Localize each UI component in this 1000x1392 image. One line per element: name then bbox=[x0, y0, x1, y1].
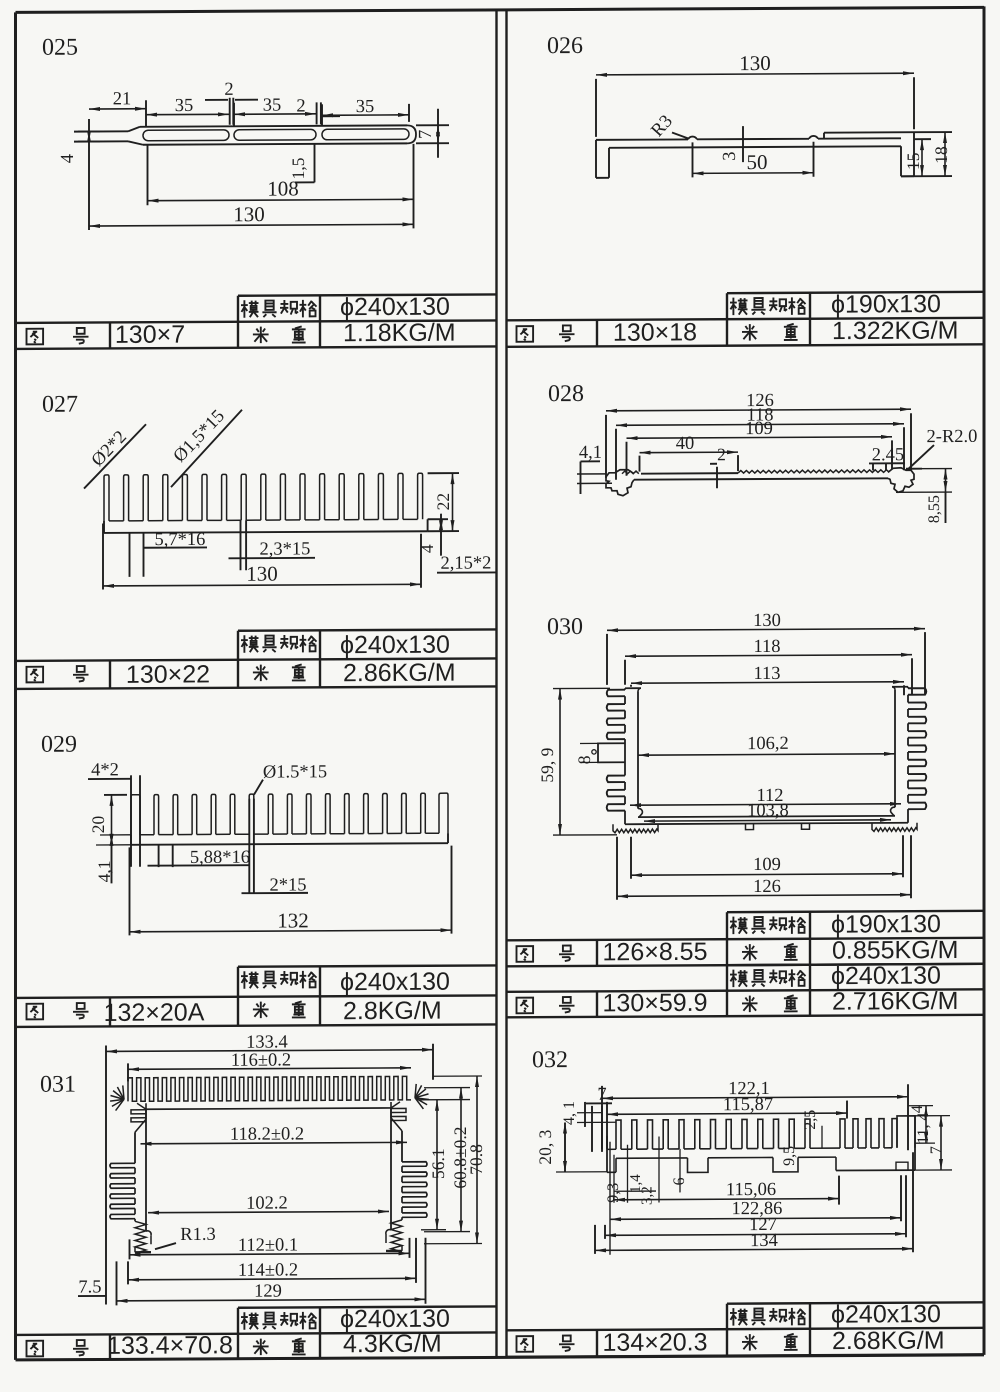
svg-text:130: 130 bbox=[233, 202, 264, 226]
svg-text:118: 118 bbox=[753, 637, 780, 657]
svg-text:106,2: 106,2 bbox=[747, 734, 789, 754]
svg-text:22: 22 bbox=[433, 493, 453, 511]
svg-text:2*15: 2*15 bbox=[270, 875, 307, 895]
svg-text:025: 025 bbox=[42, 35, 78, 61]
svg-text:R1.3: R1.3 bbox=[180, 1225, 215, 1245]
svg-text:132×20A: 132×20A bbox=[104, 998, 205, 1027]
svg-text:130: 130 bbox=[753, 611, 781, 631]
svg-text:40: 40 bbox=[676, 434, 694, 454]
svg-text:029: 029 bbox=[41, 732, 77, 758]
svg-text:ϕ240x130: ϕ240x130 bbox=[340, 631, 450, 660]
svg-text:4*2: 4*2 bbox=[91, 760, 119, 780]
svg-text:ϕ190x130: ϕ190x130 bbox=[831, 910, 941, 939]
svg-text:5,88*16: 5,88*16 bbox=[190, 848, 250, 868]
svg-text:56.1: 56.1 bbox=[428, 1148, 448, 1179]
svg-text:130×18: 130×18 bbox=[613, 318, 697, 346]
svg-text:Ø1.5*15: Ø1.5*15 bbox=[263, 762, 327, 782]
svg-text:130×7: 130×7 bbox=[115, 321, 185, 349]
svg-text:ϕ240x130: ϕ240x130 bbox=[831, 962, 941, 991]
svg-text:ϕ240x130: ϕ240x130 bbox=[340, 293, 450, 322]
svg-text:030: 030 bbox=[547, 614, 583, 640]
svg-text:126×8.55: 126×8.55 bbox=[603, 938, 708, 967]
svg-text:103,8: 103,8 bbox=[747, 801, 789, 821]
svg-text:ϕ240x130: ϕ240x130 bbox=[831, 1300, 941, 1329]
svg-text:032: 032 bbox=[532, 1047, 568, 1073]
svg-text:115,87: 115,87 bbox=[723, 1095, 773, 1115]
svg-text:1.322KG/M: 1.322KG/M bbox=[832, 316, 958, 345]
svg-text:027: 027 bbox=[42, 392, 78, 418]
svg-text:21: 21 bbox=[113, 89, 131, 109]
svg-text:2,3*15: 2,3*15 bbox=[260, 539, 311, 559]
svg-text:8,55: 8,55 bbox=[926, 495, 943, 523]
svg-text:50: 50 bbox=[747, 150, 768, 174]
svg-text:4: 4 bbox=[417, 544, 437, 553]
svg-text:2.86KG/M: 2.86KG/M bbox=[343, 659, 456, 688]
svg-text:114±0.2: 114±0.2 bbox=[238, 1260, 298, 1280]
svg-text:134: 134 bbox=[750, 1231, 778, 1251]
svg-text:116±0.2: 116±0.2 bbox=[231, 1050, 291, 1070]
svg-text:115,06: 115,06 bbox=[726, 1180, 776, 1200]
svg-text:35: 35 bbox=[175, 96, 193, 116]
svg-text:108: 108 bbox=[267, 176, 298, 200]
svg-text:11, 4: 11, 4 bbox=[915, 1112, 932, 1143]
svg-text:130: 130 bbox=[246, 562, 277, 586]
svg-text:20: 20 bbox=[88, 815, 108, 833]
svg-text:132: 132 bbox=[277, 908, 308, 932]
svg-text:4: 4 bbox=[909, 1105, 926, 1113]
svg-text:031: 031 bbox=[40, 1072, 76, 1098]
svg-text:8: 8 bbox=[574, 755, 594, 764]
svg-text:4: 4 bbox=[58, 154, 78, 163]
svg-text:112±0.1: 112±0.1 bbox=[238, 1235, 298, 1255]
svg-text:Ø2*2: Ø2*2 bbox=[88, 427, 131, 471]
svg-text:026: 026 bbox=[547, 33, 583, 59]
svg-text:9,5: 9,5 bbox=[781, 1146, 798, 1166]
svg-text:118.2±0.2: 118.2±0.2 bbox=[230, 1124, 304, 1144]
svg-text:1.18KG/M: 1.18KG/M bbox=[343, 319, 456, 348]
svg-text:2: 2 bbox=[296, 96, 305, 116]
svg-text:134×20.3: 134×20.3 bbox=[603, 1328, 708, 1357]
svg-text:102.2: 102.2 bbox=[246, 1193, 288, 1213]
svg-text:4, 1: 4, 1 bbox=[561, 1101, 578, 1125]
svg-text:130: 130 bbox=[739, 51, 770, 75]
svg-text:ϕ240x130: ϕ240x130 bbox=[340, 968, 450, 997]
svg-text:4.3KG/M: 4.3KG/M bbox=[343, 1330, 442, 1359]
svg-text:15: 15 bbox=[903, 152, 923, 170]
svg-text:ϕ190x130: ϕ190x130 bbox=[831, 290, 941, 319]
svg-text:0.855KG/M: 0.855KG/M bbox=[832, 936, 958, 965]
svg-text:2.8KG/M: 2.8KG/M bbox=[343, 997, 442, 1026]
svg-text:133.4×70.8: 133.4×70.8 bbox=[107, 1331, 233, 1360]
svg-text:7: 7 bbox=[597, 1085, 606, 1105]
svg-text:2.68KG/M: 2.68KG/M bbox=[832, 1327, 945, 1356]
svg-text:109: 109 bbox=[753, 855, 781, 875]
svg-text:2,5: 2,5 bbox=[802, 1110, 819, 1130]
svg-text:2: 2 bbox=[717, 444, 726, 464]
svg-text:109: 109 bbox=[745, 419, 773, 439]
svg-text:R3: R3 bbox=[648, 111, 677, 140]
svg-text:59, 9: 59, 9 bbox=[537, 747, 557, 782]
svg-text:113: 113 bbox=[753, 664, 780, 684]
svg-text:129: 129 bbox=[254, 1282, 282, 1302]
svg-text:3: 3 bbox=[720, 152, 740, 161]
svg-text:35: 35 bbox=[356, 97, 374, 117]
svg-text:126: 126 bbox=[753, 877, 781, 897]
svg-text:028: 028 bbox=[548, 381, 584, 407]
svg-text:4,1: 4,1 bbox=[94, 860, 114, 882]
svg-text:130×22: 130×22 bbox=[126, 660, 210, 688]
svg-text:Ø1,5*15: Ø1,5*15 bbox=[170, 406, 229, 466]
svg-text:7.5: 7.5 bbox=[78, 1277, 101, 1297]
svg-text:18: 18 bbox=[931, 146, 951, 164]
svg-text:2,15*2: 2,15*2 bbox=[441, 553, 492, 573]
svg-text:2: 2 bbox=[224, 80, 233, 100]
svg-text:2-R2.0: 2-R2.0 bbox=[927, 427, 978, 447]
svg-text:130×59.9: 130×59.9 bbox=[603, 989, 708, 1018]
svg-text:3,2: 3,2 bbox=[640, 1186, 656, 1205]
svg-text:2.716KG/M: 2.716KG/M bbox=[832, 987, 958, 1016]
svg-text:4,1: 4,1 bbox=[579, 443, 602, 463]
svg-text:35: 35 bbox=[263, 96, 281, 116]
svg-text:20, 3: 20, 3 bbox=[535, 1129, 555, 1164]
svg-text:5,7*16: 5,7*16 bbox=[155, 530, 206, 550]
svg-text:7: 7 bbox=[928, 1146, 945, 1154]
svg-text:70.8: 70.8 bbox=[466, 1144, 486, 1175]
svg-text:7: 7 bbox=[416, 130, 436, 139]
